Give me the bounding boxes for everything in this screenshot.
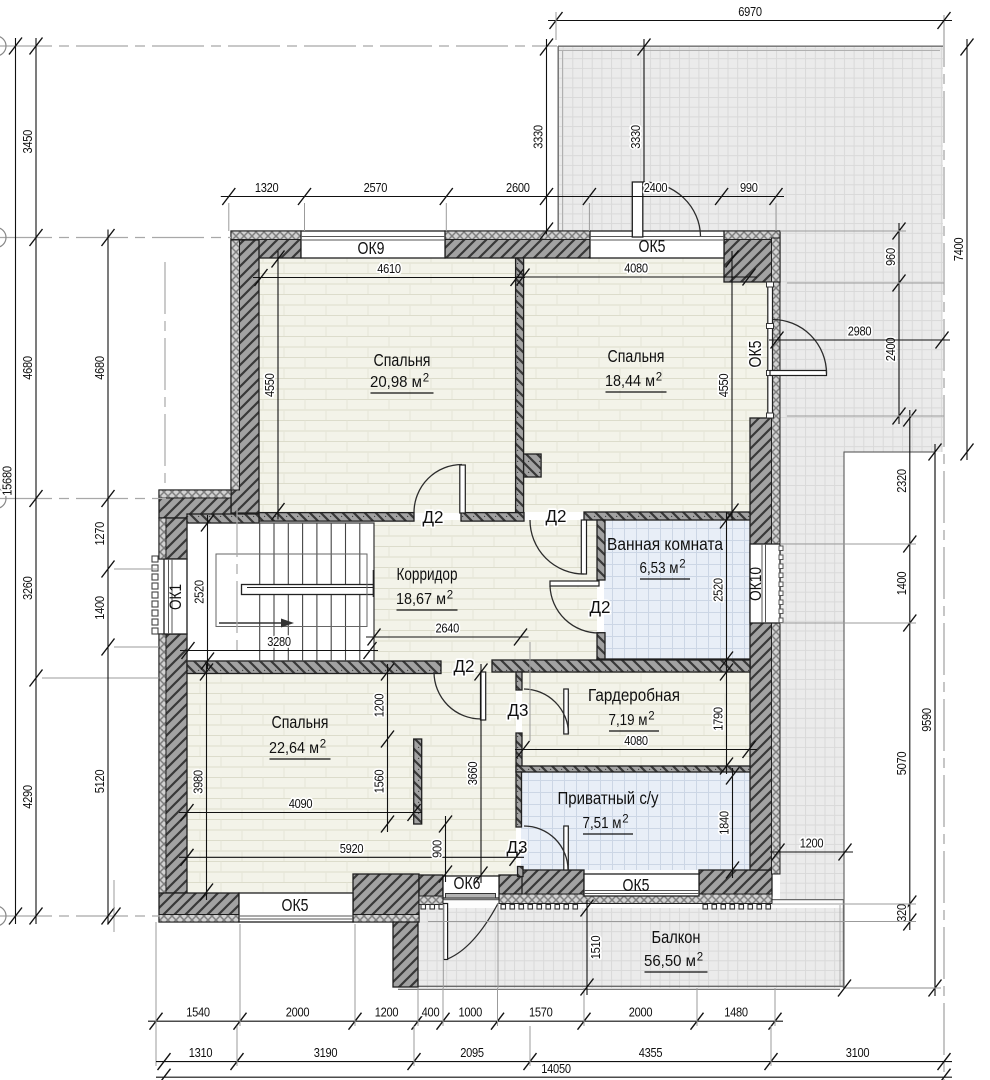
- svg-text:2095: 2095: [460, 1045, 484, 1060]
- svg-text:2400: 2400: [644, 180, 668, 195]
- svg-text:2000: 2000: [629, 1005, 653, 1020]
- svg-text:15680: 15680: [0, 466, 15, 496]
- svg-text:2: 2: [423, 373, 429, 385]
- svg-text:2: 2: [622, 814, 628, 826]
- svg-text:1570: 1570: [529, 1005, 553, 1020]
- svg-text:5920: 5920: [340, 841, 364, 856]
- svg-text:22,64 м: 22,64 м: [269, 740, 319, 757]
- svg-text:Гардеробная: Гардеробная: [588, 685, 680, 705]
- svg-text:Д2: Д2: [423, 507, 444, 527]
- svg-text:400: 400: [422, 1005, 440, 1020]
- svg-text:900: 900: [430, 840, 445, 858]
- svg-text:1000: 1000: [458, 1005, 482, 1020]
- svg-text:3330: 3330: [531, 125, 546, 149]
- svg-text:1480: 1480: [724, 1005, 748, 1020]
- svg-text:1200: 1200: [800, 836, 824, 851]
- svg-text:7400: 7400: [951, 238, 966, 262]
- svg-text:7,19 м: 7,19 м: [609, 712, 648, 729]
- svg-text:3280: 3280: [267, 634, 291, 649]
- svg-text:56,50 м: 56,50 м: [644, 953, 696, 970]
- svg-text:4090: 4090: [289, 796, 313, 811]
- svg-text:2600: 2600: [506, 180, 530, 195]
- svg-text:2: 2: [320, 739, 326, 751]
- svg-text:Д2: Д2: [546, 506, 567, 526]
- svg-text:1560: 1560: [372, 770, 387, 794]
- svg-text:Д3: Д3: [507, 837, 528, 857]
- svg-text:1310: 1310: [189, 1045, 213, 1060]
- svg-text:3190: 3190: [314, 1045, 338, 1060]
- svg-text:4550: 4550: [716, 374, 731, 398]
- svg-text:ОК5: ОК5: [623, 875, 650, 895]
- svg-text:2000: 2000: [286, 1005, 310, 1020]
- svg-text:18,67 м: 18,67 м: [396, 591, 446, 608]
- svg-text:9590: 9590: [919, 708, 934, 732]
- svg-text:1540: 1540: [186, 1005, 210, 1020]
- svg-text:1320: 1320: [255, 180, 279, 195]
- svg-text:Спальня: Спальня: [374, 350, 431, 370]
- svg-text:14050: 14050: [541, 1061, 571, 1076]
- svg-text:ОК6: ОК6: [454, 873, 481, 893]
- svg-text:1400: 1400: [92, 596, 107, 620]
- svg-text:4680: 4680: [92, 356, 107, 380]
- svg-text:6,53 м: 6,53 м: [640, 560, 679, 577]
- svg-text:2: 2: [447, 590, 453, 602]
- svg-text:5120: 5120: [92, 770, 107, 794]
- svg-text:2320: 2320: [894, 469, 909, 493]
- svg-text:2570: 2570: [364, 180, 388, 195]
- svg-text:4355: 4355: [639, 1045, 663, 1060]
- svg-text:2520: 2520: [192, 580, 207, 604]
- svg-text:2: 2: [648, 711, 654, 723]
- svg-text:ОК9: ОК9: [358, 238, 385, 258]
- svg-text:Д3: Д3: [508, 700, 529, 720]
- svg-text:1400: 1400: [894, 572, 909, 596]
- svg-text:2: 2: [679, 559, 685, 571]
- svg-text:960: 960: [883, 248, 898, 266]
- svg-text:2980: 2980: [848, 324, 872, 339]
- svg-text:ОК1: ОК1: [166, 584, 185, 610]
- svg-text:Корридор: Корридор: [397, 564, 458, 584]
- svg-text:4080: 4080: [624, 261, 648, 276]
- svg-text:Спальня: Спальня: [272, 712, 329, 732]
- svg-text:320: 320: [894, 904, 909, 922]
- svg-text:2: 2: [656, 372, 662, 384]
- svg-text:1790: 1790: [711, 707, 726, 731]
- svg-text:1200: 1200: [375, 1005, 399, 1020]
- svg-text:ОК5: ОК5: [282, 895, 309, 915]
- svg-text:3100: 3100: [846, 1045, 870, 1060]
- svg-text:4610: 4610: [377, 261, 401, 276]
- svg-text:ОК5: ОК5: [639, 236, 666, 256]
- svg-text:5070: 5070: [894, 752, 909, 776]
- svg-text:3260: 3260: [20, 576, 35, 600]
- svg-text:20,98 м: 20,98 м: [370, 374, 422, 391]
- svg-text:ОК5: ОК5: [745, 341, 765, 368]
- svg-text:2520: 2520: [711, 578, 726, 602]
- svg-text:4290: 4290: [20, 785, 35, 809]
- svg-text:Д2: Д2: [454, 656, 475, 676]
- svg-text:1200: 1200: [372, 694, 387, 718]
- svg-text:3660: 3660: [465, 762, 480, 786]
- svg-text:6970: 6970: [738, 4, 762, 19]
- svg-text:3330: 3330: [628, 125, 643, 149]
- svg-text:2400: 2400: [883, 338, 898, 362]
- svg-text:4680: 4680: [20, 356, 35, 380]
- svg-text:1270: 1270: [92, 522, 107, 546]
- svg-text:4550: 4550: [262, 373, 277, 397]
- svg-text:3450: 3450: [20, 130, 35, 154]
- svg-text:7,51 м: 7,51 м: [583, 815, 622, 832]
- svg-text:4080: 4080: [624, 733, 648, 748]
- svg-text:Балкон: Балкон: [652, 927, 701, 947]
- svg-text:Д2: Д2: [590, 597, 611, 617]
- svg-text:Приватный с/у: Приватный с/у: [558, 788, 659, 808]
- svg-text:1510: 1510: [588, 936, 603, 960]
- svg-text:18,44 м: 18,44 м: [605, 373, 655, 390]
- svg-text:990: 990: [740, 180, 758, 195]
- svg-text:2: 2: [697, 952, 703, 964]
- svg-text:Спальня: Спальня: [608, 346, 665, 366]
- svg-text:1840: 1840: [717, 811, 732, 835]
- svg-text:2640: 2640: [435, 621, 459, 636]
- svg-text:3980: 3980: [191, 770, 206, 794]
- svg-text:Ванная комната: Ванная комната: [607, 534, 723, 554]
- svg-text:ОК10: ОК10: [746, 567, 765, 601]
